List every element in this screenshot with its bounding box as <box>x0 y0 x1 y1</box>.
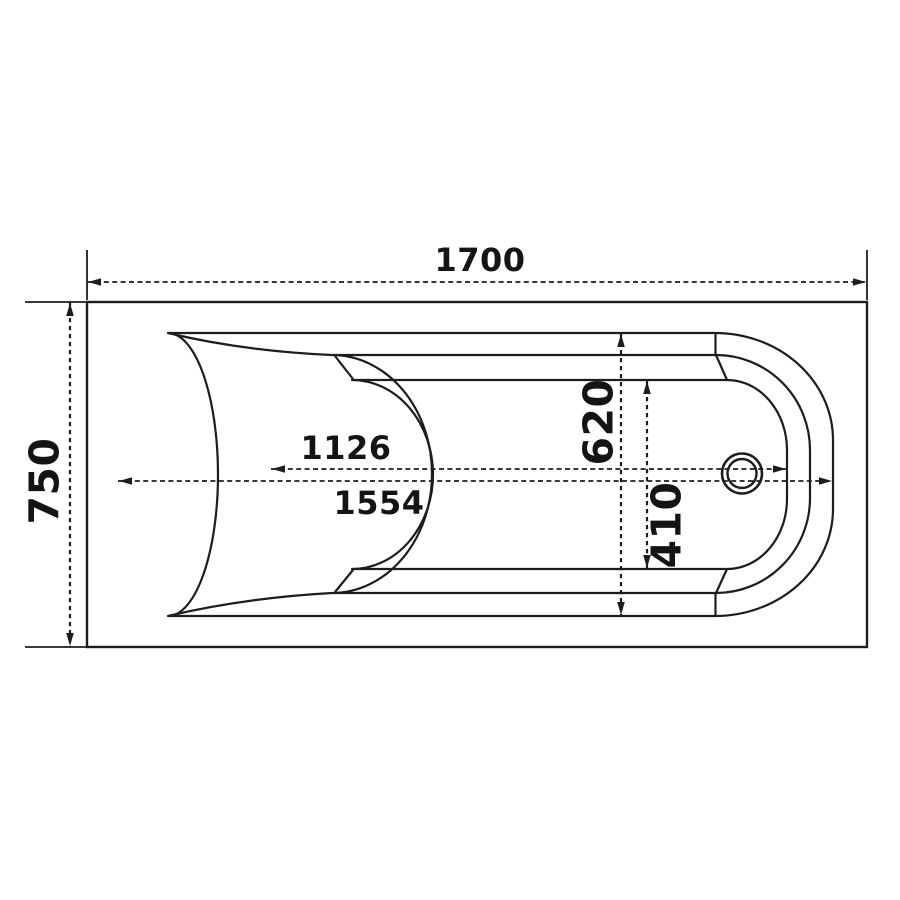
tub-rim-outline <box>168 333 833 616</box>
wall-edge-left-bottom <box>335 570 353 592</box>
wall-edge-right-top-b <box>716 355 727 380</box>
dim-label-rim-width: 620 <box>575 378 623 465</box>
arrow-left-icon <box>119 477 132 485</box>
drawing-canvas: 1700 750 1554 1126 <box>0 0 900 900</box>
dimension-rim-width: 620 <box>575 334 625 615</box>
dim-label-overall-length: 1700 <box>434 241 525 279</box>
dim-label-rim-inner-length: 1554 <box>333 484 424 522</box>
dimension-overall-length: 1700 <box>87 241 867 300</box>
arrow-left-icon <box>88 278 101 286</box>
arrow-right-icon <box>853 278 866 286</box>
dim-label-overall-width: 750 <box>21 437 69 524</box>
dimension-basin-length: 1126 <box>271 429 787 473</box>
dimension-overall-width: 750 <box>21 302 87 647</box>
dimension-basin-width: 410 <box>643 381 691 569</box>
arrow-right-icon <box>773 465 786 473</box>
arrow-up-icon <box>643 381 651 394</box>
wall-edge-left-top <box>335 356 353 379</box>
wall-edge-right-bottom-b <box>716 569 727 593</box>
arrow-down-icon <box>617 602 625 615</box>
dim-label-basin-width: 410 <box>643 481 691 568</box>
arrow-right-icon <box>819 477 832 485</box>
arrow-up-icon <box>66 303 74 316</box>
arrow-up-icon <box>617 334 625 347</box>
drain-inner-circle <box>728 459 757 488</box>
bathtub-drawing: 1700 750 1554 1126 <box>0 0 900 900</box>
dim-label-basin-length: 1126 <box>300 429 391 467</box>
tub-outer-rectangle <box>87 302 867 647</box>
arrow-down-icon <box>66 633 74 646</box>
tub-rim-inner-contour <box>332 355 810 593</box>
arrow-left-icon <box>272 465 285 473</box>
